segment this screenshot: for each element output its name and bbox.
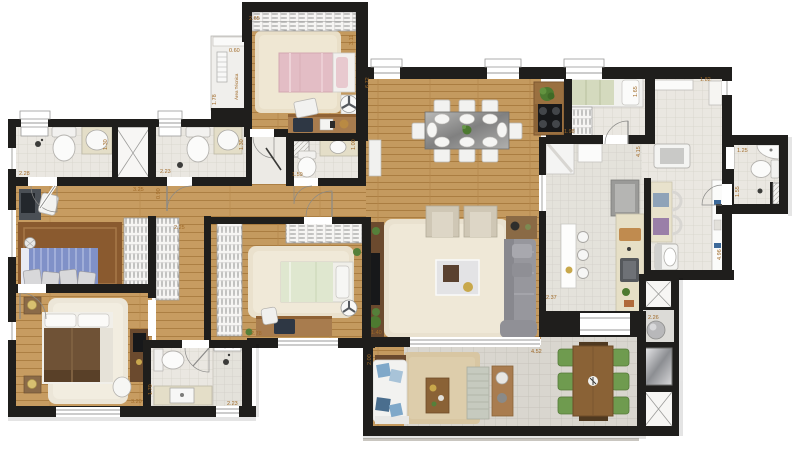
svg-text:1.40: 1.40 xyxy=(371,330,382,336)
svg-text:Área Técnica: Área Técnica xyxy=(233,73,239,100)
svg-text:1.78: 1.78 xyxy=(212,94,218,105)
svg-text:2.28: 2.28 xyxy=(19,171,30,177)
svg-text:2.65: 2.65 xyxy=(249,16,260,22)
svg-text:2.00: 2.00 xyxy=(367,354,373,365)
svg-text:2.78: 2.78 xyxy=(251,331,262,337)
svg-text:1.30: 1.30 xyxy=(103,139,109,150)
svg-text:0.90: 0.90 xyxy=(156,188,162,199)
svg-text:3.25: 3.25 xyxy=(133,187,144,193)
svg-text:1.30: 1.30 xyxy=(239,139,245,150)
svg-text:1.98: 1.98 xyxy=(564,129,575,135)
svg-text:2.26: 2.26 xyxy=(648,315,659,321)
svg-text:1.70: 1.70 xyxy=(148,384,154,395)
svg-text:2.25: 2.25 xyxy=(174,225,185,231)
svg-text:1.00: 1.00 xyxy=(351,139,357,150)
svg-text:2.37: 2.37 xyxy=(546,295,557,301)
svg-text:3.20: 3.20 xyxy=(131,399,142,405)
svg-text:1.59: 1.59 xyxy=(292,172,303,178)
svg-text:1.55: 1.55 xyxy=(735,186,741,197)
svg-text:1.82: 1.82 xyxy=(700,77,711,83)
svg-text:4.96: 4.96 xyxy=(717,249,723,260)
svg-text:0.60: 0.60 xyxy=(229,48,240,54)
svg-text:3.11: 3.11 xyxy=(349,35,355,45)
svg-text:4.15: 4.15 xyxy=(636,146,642,157)
svg-text:6.72: 6.72 xyxy=(365,77,371,88)
svg-text:4.52: 4.52 xyxy=(531,349,542,355)
svg-text:2.23: 2.23 xyxy=(160,169,171,175)
svg-text:1.25: 1.25 xyxy=(737,148,748,154)
svg-text:2.23: 2.23 xyxy=(227,401,238,407)
svg-text:1.65: 1.65 xyxy=(633,86,639,97)
